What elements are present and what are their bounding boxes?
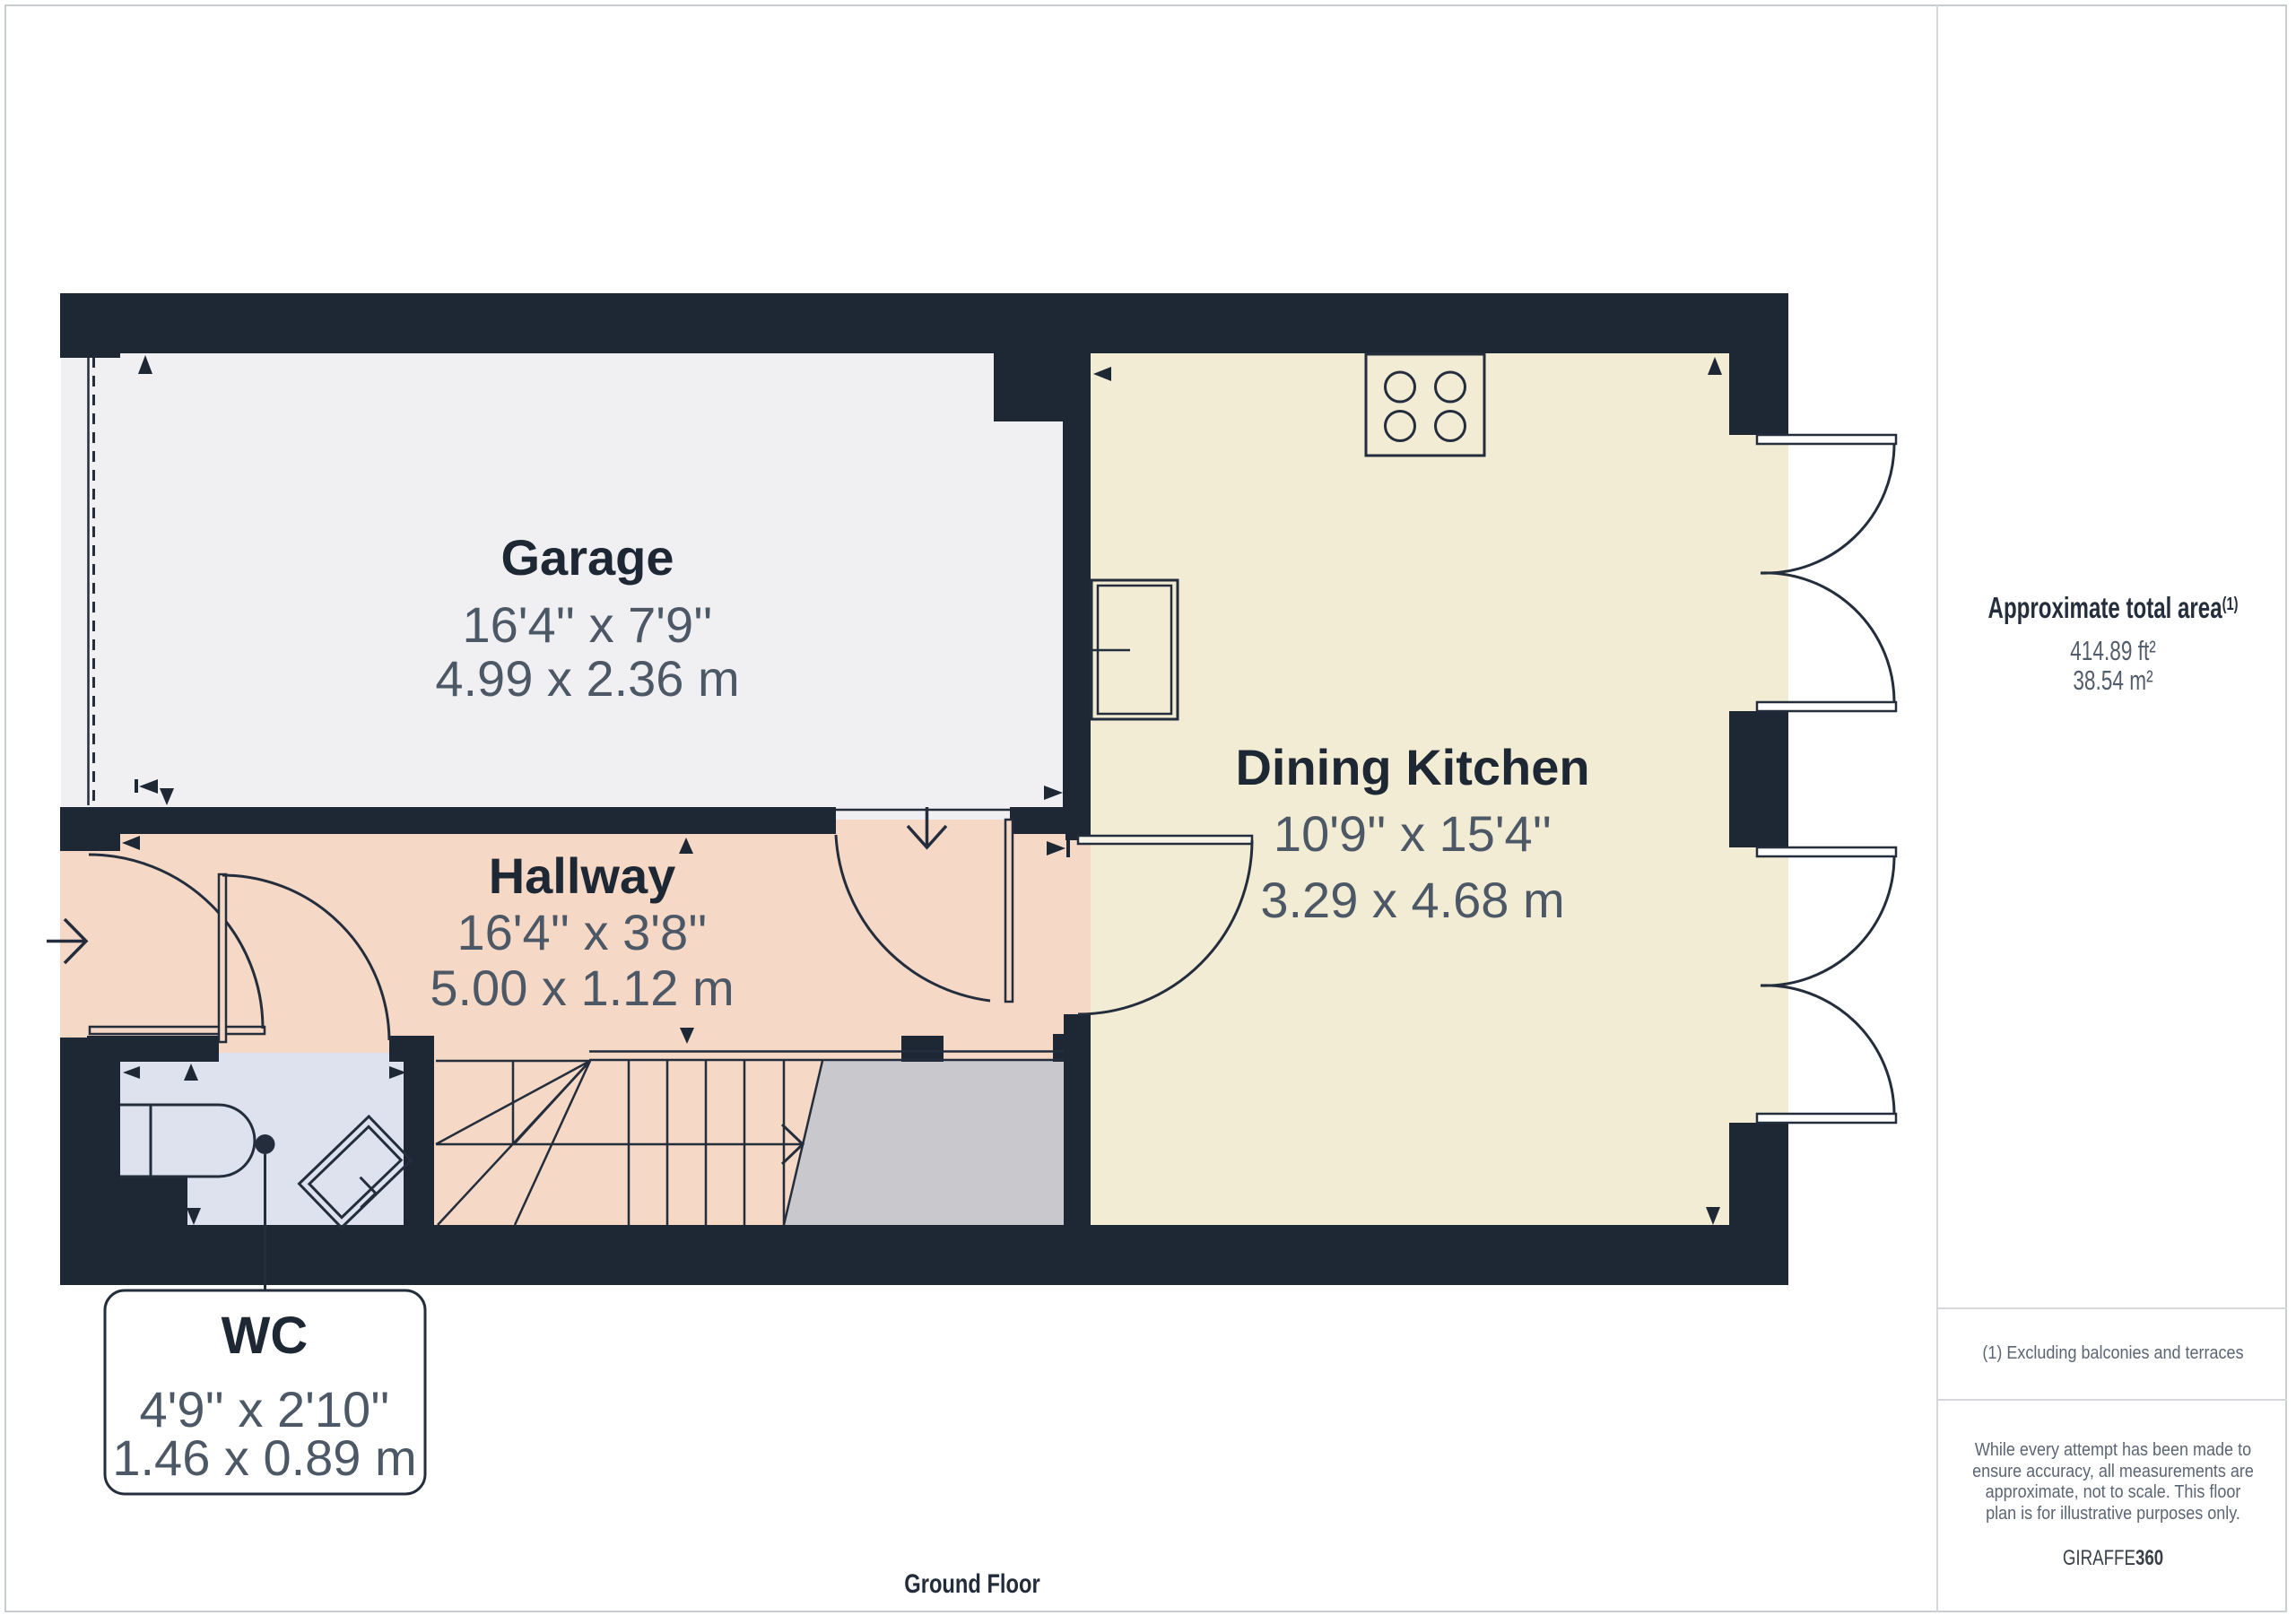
svg-text:16'4'' x 3'8'': 16'4'' x 3'8'' <box>457 904 708 960</box>
svg-text:16'4'' x 7'9'': 16'4'' x 7'9'' <box>463 596 713 653</box>
svg-text:Garage: Garage <box>501 529 674 586</box>
svg-text:3.29 x 4.68 m: 3.29 x 4.68 m <box>1260 872 1564 928</box>
svg-text:Hallway: Hallway <box>489 847 676 904</box>
svg-text:5.00 x 1.12 m: 5.00 x 1.12 m <box>430 960 734 1016</box>
svg-text:WC: WC <box>222 1307 309 1365</box>
svg-text:10'9'' x 15'4'': 10'9'' x 15'4'' <box>1274 805 1552 862</box>
svg-text:1.46 x 0.89 m: 1.46 x 0.89 m <box>112 1429 416 1486</box>
svg-text:4.99 x 2.36 m: 4.99 x 2.36 m <box>435 650 739 707</box>
svg-text:Dining Kitchen: Dining Kitchen <box>1235 739 1589 795</box>
